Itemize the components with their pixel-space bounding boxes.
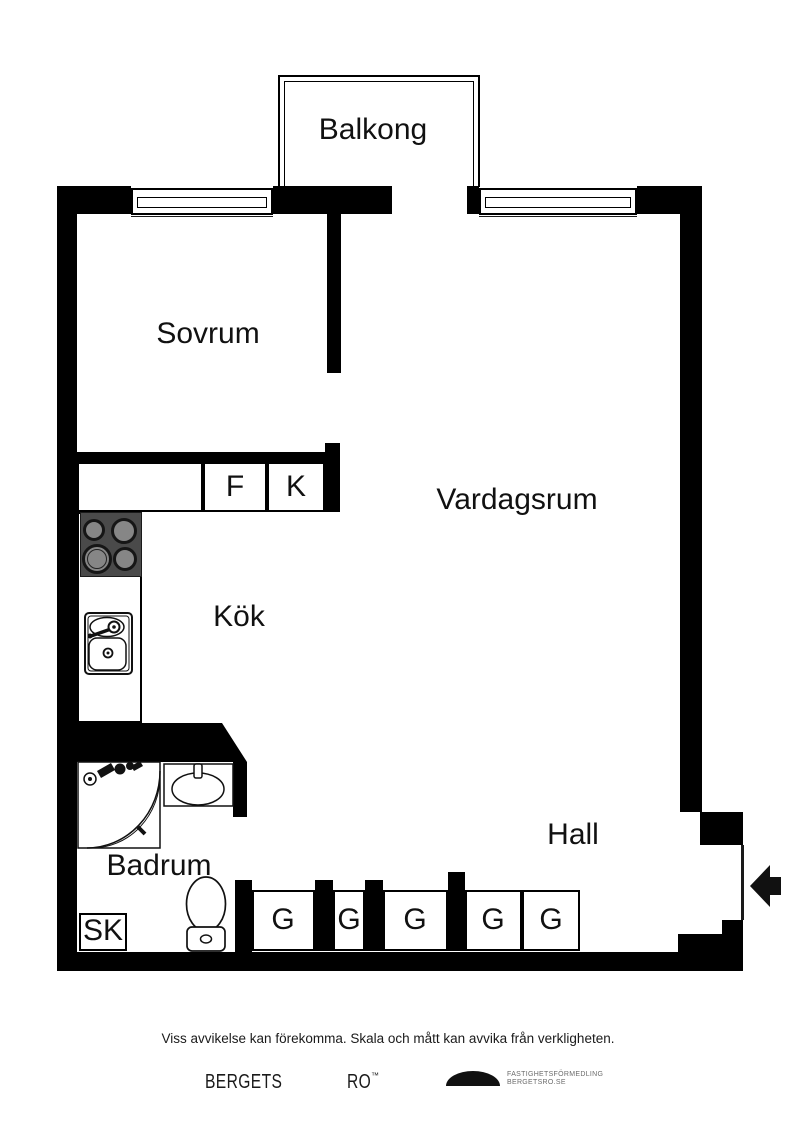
entry-wall-upper [700, 812, 743, 845]
toilet-tank-icon [187, 927, 225, 951]
entry-corner-block [678, 934, 743, 952]
bedroom-partition-upper [327, 214, 341, 373]
wardrobe-divider-3 [448, 872, 465, 951]
wardrobe-divider-2 [365, 880, 383, 951]
label-living-room: Vardagsrum [436, 483, 597, 517]
shower-drain-dot [88, 777, 92, 781]
label-closet-f: F [226, 470, 244, 504]
shower-door-arc-inner-icon [92, 776, 160, 848]
bathroom-lower-wall [235, 880, 252, 952]
burner-icon [82, 544, 112, 574]
label-wardrobe-g2: G [337, 903, 360, 937]
washbasin-tap-icon [194, 764, 202, 778]
bathroom-top-wall [57, 723, 247, 817]
label-closet-k: K [286, 470, 306, 504]
entry-wall-lower-step [722, 920, 743, 934]
shower-drain-icon [84, 773, 96, 785]
wall-top-segment-2 [273, 186, 392, 214]
brand-tagline-line1: FASTIGHETSFÖRMEDLING [507, 1071, 603, 1079]
stove-icon [80, 512, 142, 577]
shower-mixer-icon [97, 763, 115, 778]
wall-top-segment-4 [637, 186, 702, 214]
label-wardrobe-g1: G [271, 903, 294, 937]
shower-head-icon [131, 761, 143, 771]
shower-tray-icon [78, 762, 160, 848]
shower-door-handle-icon [138, 827, 145, 834]
kitchen-counter-top [77, 462, 203, 512]
livingroom-window-sill-line [479, 216, 637, 217]
bedroom-window-sash [137, 197, 267, 208]
label-bathroom: Badrum [106, 849, 211, 883]
wardrobe-divider-1 [315, 880, 333, 951]
entry-door-opening-line [741, 845, 744, 920]
wall-bottom [57, 952, 743, 971]
burner-icon [113, 547, 137, 571]
brand-wordmark-left: BERGETS [205, 1070, 282, 1094]
brand-semicircle-icon [446, 1071, 500, 1086]
shower-knob-icon [115, 764, 126, 775]
bedroom-window-sill-line [131, 216, 273, 217]
brand-tagline-line2: BERGETSRO.SE [507, 1079, 603, 1087]
burner-icon [83, 519, 105, 541]
shower-knob-icon [126, 762, 134, 770]
disclaimer-text: Viss avvikelse kan förekomma. Skala och … [162, 1031, 615, 1046]
label-closet-sk: SK [83, 914, 123, 948]
toilet-button-icon [201, 935, 212, 943]
label-wardrobe-g4: G [481, 903, 504, 937]
label-wardrobe-g5: G [539, 903, 562, 937]
label-kitchen: Kök [213, 600, 265, 634]
brand-wordmark-right: RO [347, 1070, 371, 1094]
burner-icon [111, 518, 137, 544]
brand-tagline: FASTIGHETSFÖRMEDLING BERGETSRO.SE [507, 1071, 603, 1087]
wall-top-segment-3 [467, 186, 479, 214]
label-bedroom: Sovrum [156, 317, 259, 351]
washbasin-bowl-icon [172, 773, 224, 805]
label-hall: Hall [547, 818, 599, 852]
washbasin-counter [164, 764, 233, 806]
entrance-arrow-icon [750, 865, 781, 907]
toilet-bowl-icon [187, 877, 226, 931]
shower-door-arc-icon [87, 771, 160, 848]
wall-right [680, 214, 702, 812]
label-balcony: Balkong [319, 113, 427, 147]
trademark-symbol: ™ [371, 1071, 379, 1080]
label-wardrobe-g3: G [403, 903, 426, 937]
wall-left [57, 186, 77, 971]
floor-plan-page: Balkong Sovrum Vardagsrum Kök Badrum Hal… [0, 0, 800, 1131]
livingroom-window-sash [485, 197, 631, 208]
